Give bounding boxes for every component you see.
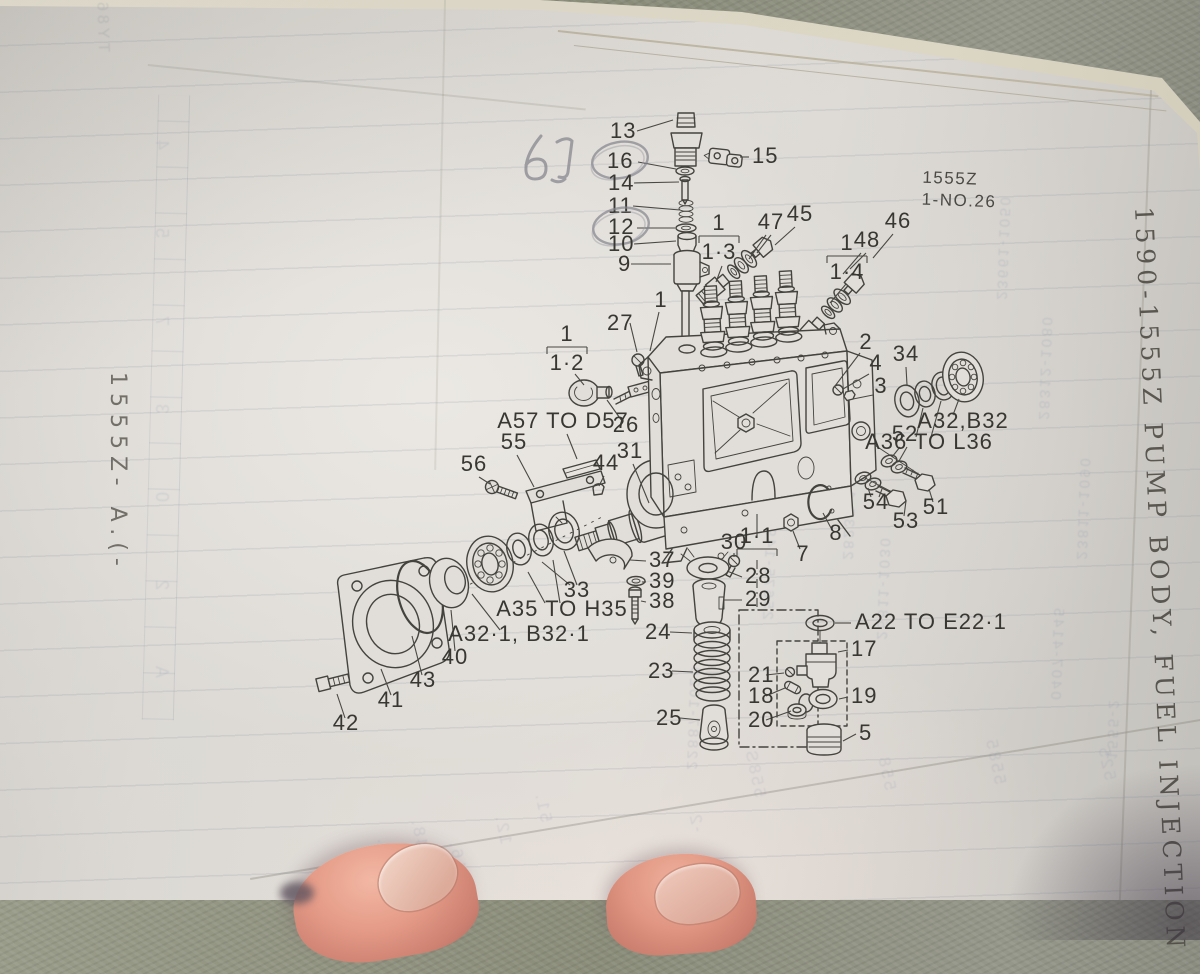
- callout-15: 15: [752, 143, 778, 168]
- callout-18: 18: [748, 683, 774, 708]
- callout-40: 40: [442, 644, 468, 669]
- part-bolt-51: [903, 468, 935, 491]
- callout-38: 38: [649, 588, 675, 613]
- finger-shadow: [280, 882, 314, 904]
- part-ball-bearing-a32: [938, 348, 988, 405]
- callout-24: 24: [645, 619, 671, 644]
- part-screw-27: [632, 354, 644, 376]
- callout-5: 5: [859, 720, 872, 745]
- part-cap-5: [807, 724, 841, 755]
- callout-13: 13: [610, 118, 636, 143]
- handwritten-note: [526, 136, 572, 182]
- callout-43: 43: [410, 667, 436, 692]
- callout-1·4: 1·4: [830, 259, 865, 284]
- callout-7: 7: [796, 541, 809, 566]
- callout-14: 14: [608, 170, 634, 195]
- callout-41: 41: [378, 687, 404, 712]
- callout-4: 4: [869, 350, 882, 375]
- callout-45: 45: [787, 201, 813, 226]
- part-pin-18: [783, 680, 802, 695]
- callout-54: 54: [863, 489, 889, 514]
- part-washers-33-a35: [503, 509, 583, 567]
- callout-29: 29: [745, 586, 771, 611]
- callout-group-1: 1: [560, 321, 573, 346]
- part-woodruff-key-44: [593, 484, 604, 495]
- callout-47: 47: [758, 209, 784, 234]
- corner-shadow: [990, 750, 1200, 940]
- callout-A35 TO H35: A35 TO H35: [496, 596, 627, 621]
- callout-1·2: 1·2: [550, 350, 585, 375]
- photo-parts-catalog-page: { "page": { "left_margin": "1555Z- A.(-"…: [0, 0, 1200, 900]
- part-screw-21: [786, 668, 795, 677]
- part-nut-7: [784, 514, 798, 531]
- callout-1: 1: [654, 287, 667, 312]
- part-clamp-15: [703, 147, 742, 167]
- part-plunger-spring-23: [694, 642, 730, 702]
- part-tappet-sleeve-29: [693, 579, 725, 626]
- callout-48: 48: [854, 227, 880, 252]
- callout-1·3: 1·3: [702, 239, 737, 264]
- callout-44: 44: [593, 450, 619, 475]
- part-rocker-37: [588, 539, 632, 569]
- callout-46: 46: [885, 208, 911, 233]
- callout-9: 9: [618, 251, 631, 276]
- callout-31: 31: [617, 438, 643, 463]
- part-ball-bearing-a32-1: [462, 532, 519, 596]
- callout-19: 19: [851, 683, 877, 708]
- part-bolt-38: [629, 587, 641, 624]
- callout-1·1: 1·1: [740, 523, 775, 548]
- callout-25: 25: [656, 705, 682, 730]
- callout-51: 51: [923, 494, 949, 519]
- callout-56: 56: [461, 451, 487, 476]
- callout-42: 42: [333, 710, 359, 735]
- callout-28: 28: [745, 563, 771, 588]
- callout-53: 53: [893, 508, 919, 533]
- index-nail: [651, 858, 744, 930]
- callout-20: 20: [748, 707, 774, 732]
- callout-23: 23: [648, 658, 674, 683]
- part-gasket-a22: [806, 616, 834, 644]
- part-tappet-25: [700, 705, 728, 750]
- callout-8: 8: [829, 520, 842, 545]
- callout-27: 27: [607, 310, 633, 335]
- callout-A22 TO E22·1: A22 TO E22·1: [855, 609, 1007, 634]
- part-plug-1-2: [569, 380, 612, 406]
- callout-group-1: 1: [840, 230, 853, 255]
- part-washer-39: [627, 577, 645, 586]
- callout-17: 17: [851, 636, 877, 661]
- part-valve-body-17: [797, 643, 836, 687]
- callout-A36 TO L36: A36 TO L36: [865, 429, 993, 454]
- callout-A32·1, B32·1: A32·1, B32·1: [448, 621, 590, 646]
- callout-34: 34: [893, 341, 919, 366]
- part-screw-56: [484, 479, 519, 502]
- callout-A57 TO D57: A57 TO D57: [497, 408, 628, 433]
- callout-group-1: 1: [712, 210, 725, 235]
- callout-3: 3: [874, 373, 887, 398]
